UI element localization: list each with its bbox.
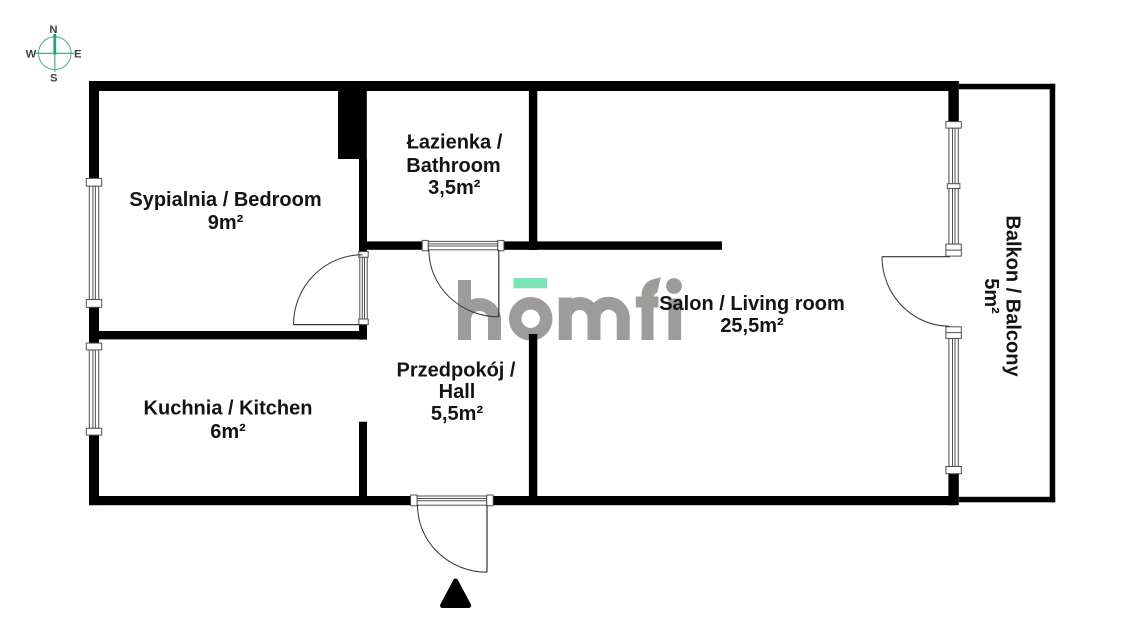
svg-text:Przedpokój /: Przedpokój / (397, 359, 516, 381)
svg-text:Łazienka /: Łazienka / (407, 132, 503, 154)
svg-text:Salon / Living room: Salon / Living room (659, 293, 845, 315)
svg-text:6m²: 6m² (210, 421, 246, 443)
svg-text:Kuchnia / Kitchen: Kuchnia / Kitchen (144, 398, 313, 420)
svg-text:Hall: Hall (439, 381, 476, 403)
svg-text:9m²: 9m² (208, 212, 244, 234)
svg-text:W: W (26, 49, 37, 61)
svg-text:Balkon / Balcony: Balkon / Balcony (1002, 215, 1024, 377)
svg-text:Sypialnia / Bedroom: Sypialnia / Bedroom (129, 189, 321, 211)
svg-text:N: N (49, 24, 57, 36)
svg-text:5,5m²: 5,5m² (431, 403, 484, 425)
svg-text:3,5m²: 3,5m² (428, 177, 481, 199)
svg-text:5m²: 5m² (980, 278, 1002, 314)
svg-text:E: E (74, 49, 82, 61)
svg-text:S: S (50, 73, 58, 85)
svg-text:Bathroom: Bathroom (406, 155, 500, 177)
svg-text:25,5m²: 25,5m² (720, 315, 784, 337)
